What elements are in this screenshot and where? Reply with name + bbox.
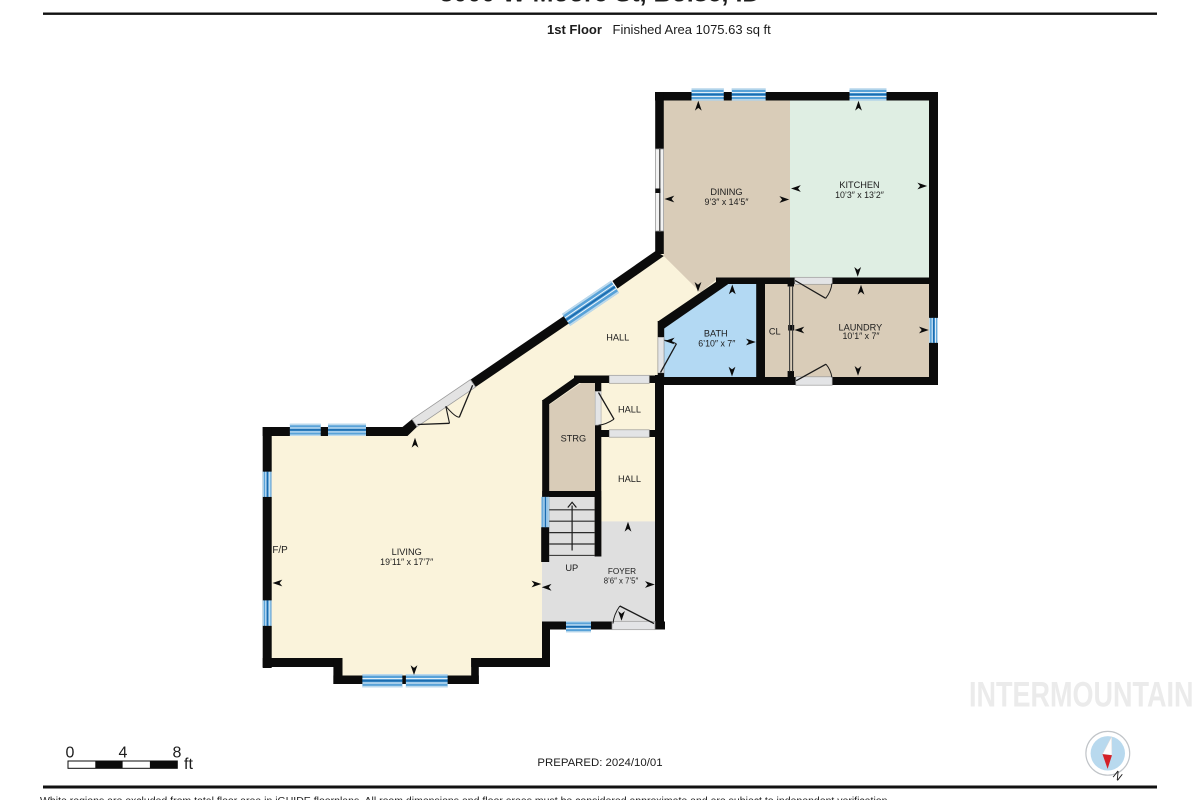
- svg-text:F/P: F/P: [272, 545, 288, 556]
- svg-text:DINING: DINING: [710, 187, 742, 197]
- svg-text:8: 8: [173, 745, 182, 762]
- svg-text:9’3″ x 14’5″: 9’3″ x 14’5″: [705, 197, 749, 207]
- svg-text:ft: ft: [184, 756, 193, 773]
- svg-text:8’6″ x 7’5″: 8’6″ x 7’5″: [604, 576, 639, 585]
- svg-text:HALL: HALL: [618, 404, 641, 414]
- svg-text:4: 4: [119, 745, 128, 762]
- svg-text:6’10″ x 7″: 6’10″ x 7″: [698, 339, 735, 349]
- svg-text:PREPARED: 2024/10/01: PREPARED: 2024/10/01: [537, 757, 662, 769]
- svg-text:3000 W Moore St, Boise, ID: 3000 W Moore St, Boise, ID: [440, 0, 761, 8]
- svg-text:10’1″ x 7″: 10’1″ x 7″: [842, 331, 879, 341]
- svg-text:STRG: STRG: [561, 434, 587, 444]
- svg-text:UP: UP: [565, 563, 578, 573]
- svg-text:INTERMOUNTAIN: INTERMOUNTAIN: [969, 675, 1194, 715]
- svg-text:10’3″ x 13’2″: 10’3″ x 13’2″: [835, 190, 884, 200]
- svg-text:White regions are excluded fro: White regions are excluded from total fl…: [40, 795, 890, 800]
- svg-text:Finished Area 1075.63 sq ft: Finished Area 1075.63 sq ft: [613, 22, 772, 37]
- svg-text:KITCHEN: KITCHEN: [839, 180, 879, 190]
- svg-text:HALL: HALL: [618, 474, 641, 484]
- svg-text:FOYER: FOYER: [608, 567, 636, 576]
- svg-text:BATH: BATH: [704, 328, 728, 338]
- svg-text:19’11″ x 17’7″: 19’11″ x 17’7″: [380, 557, 433, 567]
- svg-text:CL: CL: [769, 327, 781, 337]
- svg-text:0: 0: [66, 745, 75, 762]
- svg-text:1st Floor: 1st Floor: [547, 22, 602, 37]
- svg-text:LIVING: LIVING: [392, 547, 422, 557]
- svg-text:HALL: HALL: [606, 332, 629, 342]
